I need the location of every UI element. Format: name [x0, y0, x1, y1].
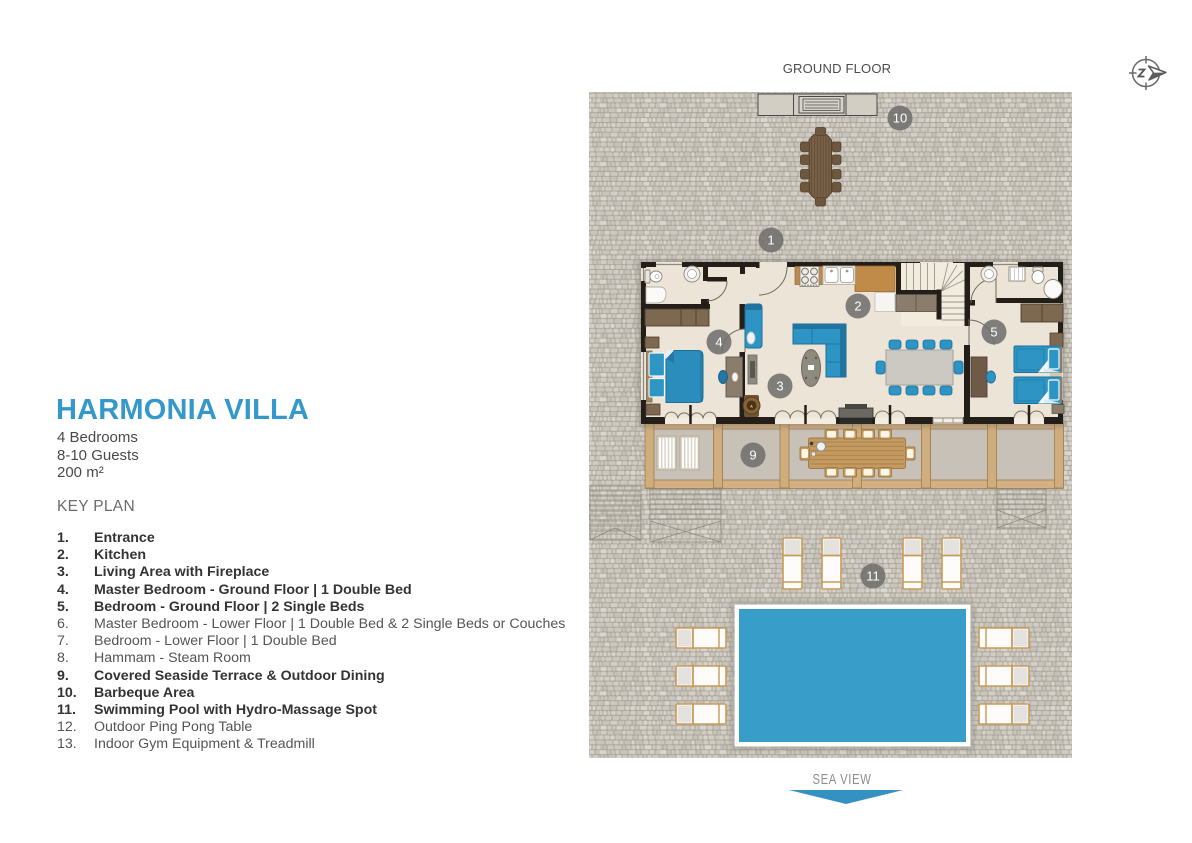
- svg-text:11: 11: [866, 569, 880, 584]
- svg-text:5: 5: [990, 325, 997, 340]
- svg-text:3: 3: [776, 379, 783, 394]
- svg-text:2: 2: [854, 299, 861, 314]
- svg-text:1: 1: [767, 233, 774, 248]
- svg-text:10: 10: [893, 111, 907, 126]
- svg-text:4: 4: [715, 335, 722, 350]
- svg-text:9: 9: [749, 448, 756, 463]
